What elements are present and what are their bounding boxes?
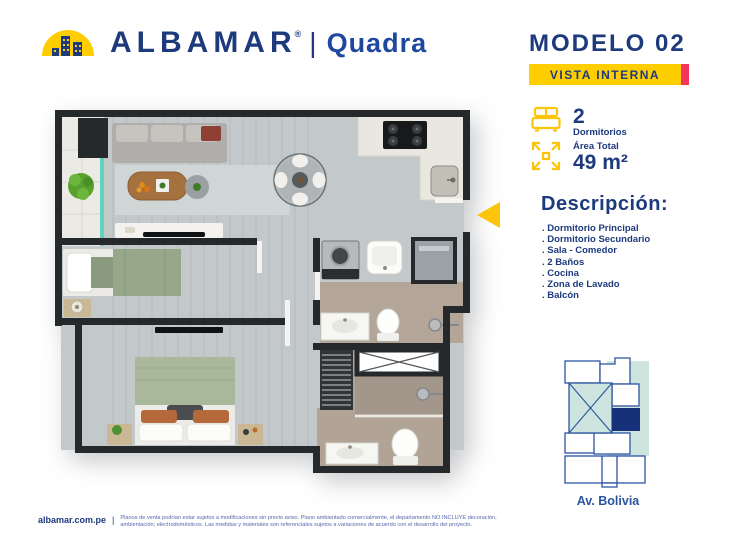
dining-table — [274, 154, 326, 206]
bedrooms-label: Dormitorios — [573, 127, 627, 138]
street-label: Av. Bolivia — [540, 494, 676, 508]
area-value: 49 m² — [573, 152, 628, 173]
brand-sub-name: Quadra — [327, 30, 428, 57]
expand-arrows-icon — [531, 141, 561, 171]
bed-icon — [531, 106, 561, 132]
sofa — [112, 123, 227, 163]
tv-screen — [143, 232, 205, 237]
building-location-map — [562, 356, 654, 488]
spec-area: Área Total 49 m² — [531, 141, 628, 173]
laundry-sink — [367, 241, 402, 274]
bedrooms-value: 2 — [573, 106, 627, 127]
list-item: . Cocina — [542, 268, 650, 279]
footer: albamar.com.pe | Planos de venta podrían… — [38, 515, 497, 530]
triangle-arrow-left-icon — [477, 202, 500, 228]
floor-plan — [55, 110, 470, 480]
list-item: . Dormitorio Secundario — [542, 234, 650, 245]
dome-buildings-icon — [40, 24, 96, 62]
double-bed — [135, 357, 235, 445]
brand-name: ALBAMAR — [110, 28, 297, 58]
toilet — [377, 309, 399, 341]
disclaimer-line: Planos de venta podrían estar sujetos a … — [120, 515, 496, 522]
model-header: MODELO 02 VISTA INTERNA — [529, 30, 689, 85]
side-table — [185, 175, 209, 199]
disclaimer-line: ambientación; electrodomésticos. Las med… — [120, 522, 496, 529]
website-text: albamar.com.pe — [38, 515, 106, 525]
glass-partition — [100, 152, 104, 246]
map-highlighted-unit — [612, 408, 640, 431]
disclaimer: Planos de venta podrían estar sujetos a … — [120, 515, 496, 530]
tv-screen — [155, 327, 223, 333]
kitchen-sink — [431, 166, 458, 196]
spec-bedrooms: 2 Dormitorios — [531, 106, 627, 138]
view-badge: VISTA INTERNA — [529, 64, 681, 85]
nightstand-lamp — [64, 299, 91, 317]
tv-console — [115, 223, 223, 238]
footer-divider: | — [112, 515, 114, 525]
list-item: . Zona de Lavado — [542, 279, 650, 290]
registered-mark: ® — [295, 29, 302, 39]
washing-machine — [322, 241, 359, 279]
flyer-page: ALBAMAR® | Quadra MODELO 02 VISTA INTERN… — [0, 0, 730, 548]
description-list: . Dormitorio Principal . Dormitorio Secu… — [542, 223, 650, 301]
map-core — [569, 383, 612, 433]
water-heater — [413, 239, 455, 282]
toilet — [392, 429, 418, 465]
list-item: . Sala - Comedor — [542, 245, 650, 256]
closet-x — [357, 350, 441, 374]
brand-divider: | — [309, 29, 316, 57]
nightstand — [238, 424, 263, 445]
coffee-table — [128, 172, 187, 200]
cooktop — [383, 121, 427, 149]
ensuite-vanity — [326, 443, 378, 464]
list-item: . Dormitorio Principal — [542, 223, 650, 234]
brand-logo: ALBAMAR® | Quadra — [40, 24, 427, 62]
view-badge-label: VISTA INTERNA — [550, 68, 660, 82]
description-heading: Descripción: — [541, 193, 668, 216]
single-bed — [63, 249, 181, 296]
bath-vanity — [321, 313, 369, 340]
main-bathroom — [320, 239, 463, 343]
badge-pink-stripe — [681, 64, 689, 85]
model-title: MODELO 02 — [529, 30, 689, 58]
closet-shelves — [320, 350, 353, 410]
list-item: . Balcón — [542, 290, 650, 301]
nightstand — [107, 424, 132, 445]
list-item: . 2 Baños — [542, 257, 650, 268]
